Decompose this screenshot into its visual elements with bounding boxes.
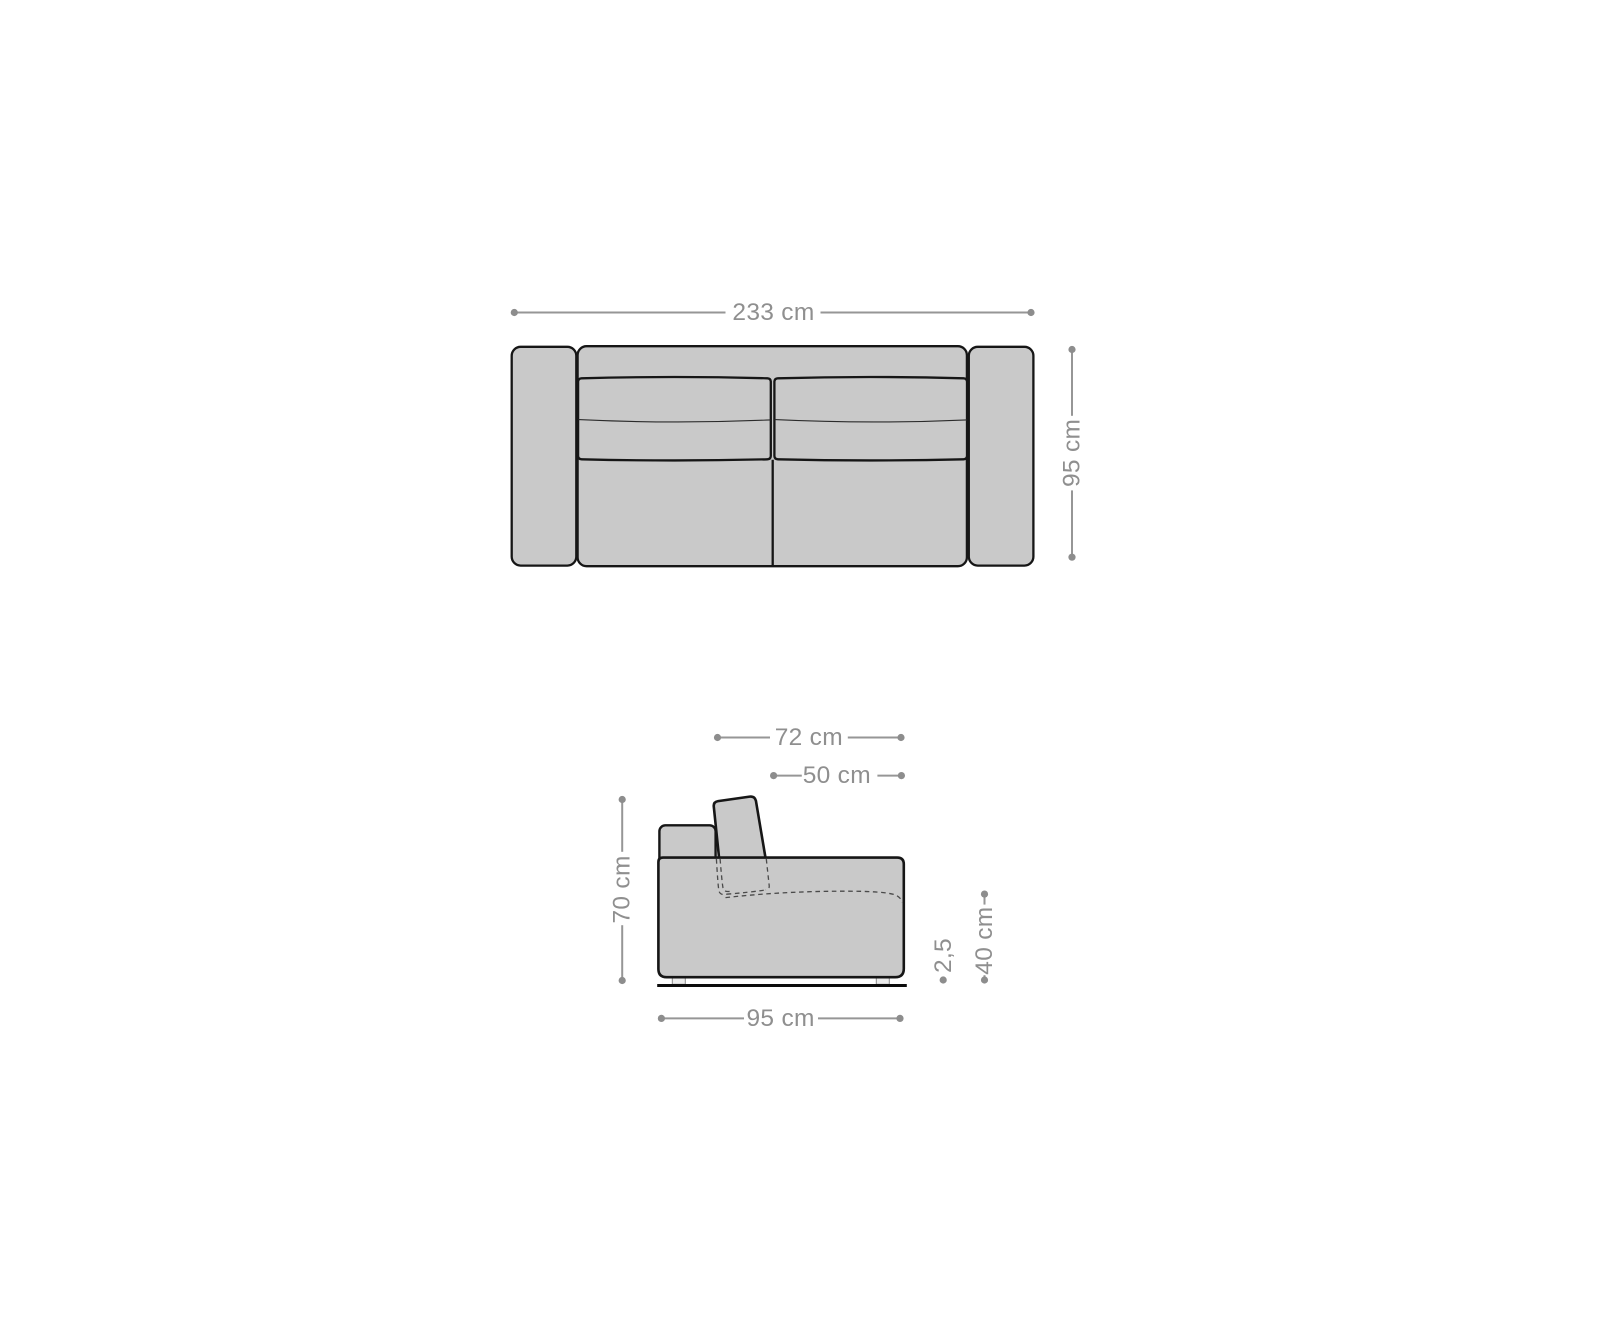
svg-text:72 cm: 72 cm bbox=[775, 724, 843, 751]
svg-text:70 cm: 70 cm bbox=[609, 855, 636, 923]
svg-text:2,5: 2,5 bbox=[930, 938, 957, 973]
svg-text:40 cm: 40 cm bbox=[971, 906, 998, 974]
svg-text:50 cm: 50 cm bbox=[803, 762, 871, 789]
svg-text:95 cm: 95 cm bbox=[1059, 419, 1086, 487]
svg-text:95 cm: 95 cm bbox=[746, 1005, 814, 1032]
svg-text:233 cm: 233 cm bbox=[732, 299, 814, 326]
